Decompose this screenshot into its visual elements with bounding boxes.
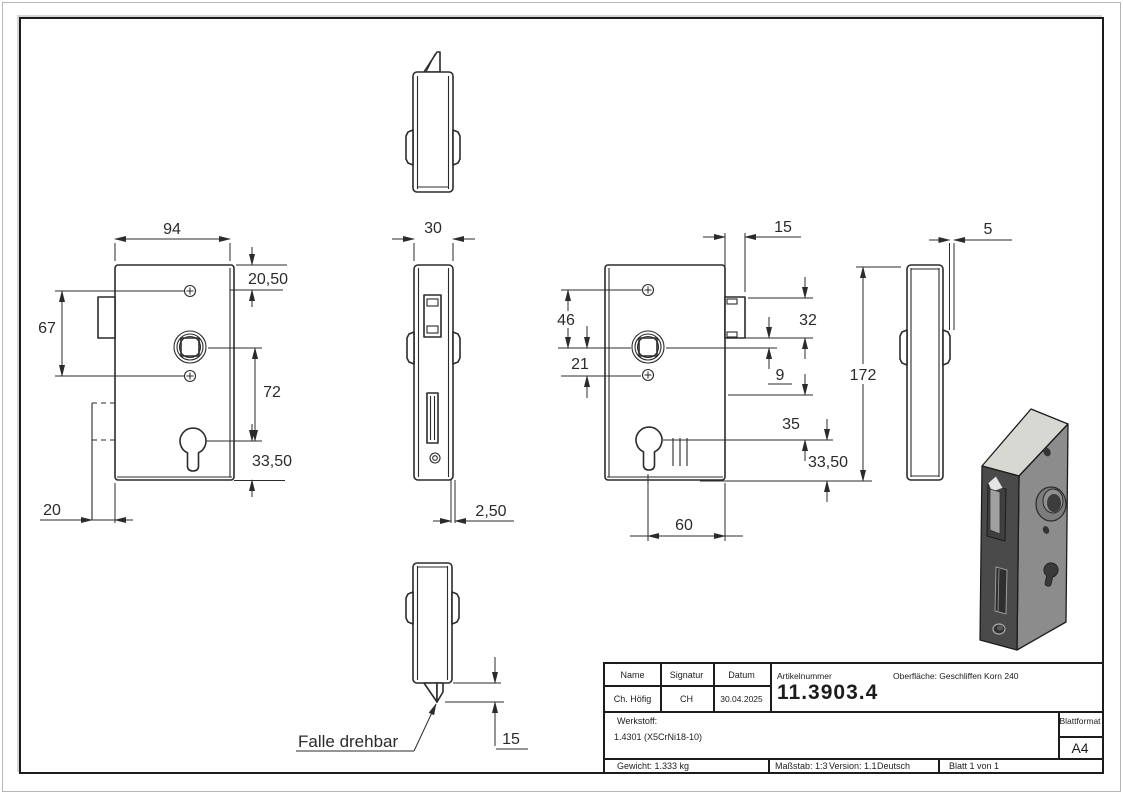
top-view [406,52,460,192]
mount-tab [900,330,907,365]
mount-tab [943,330,950,365]
name-value: Ch. Höfig [605,694,660,704]
divider [605,758,1102,760]
dim-172: 172 [850,367,877,384]
iso-view [980,409,1068,650]
iso-latch [990,489,1000,534]
drawing-sheet: 94 20,50 67 72 33,50 20 [0,0,1123,794]
sprache: Deutsch [877,761,910,771]
dim-9: 9 [776,367,785,384]
latch-front [98,297,115,338]
version: Version: 1.1 [829,761,877,771]
divider [938,758,940,772]
signatur-value: CH [660,694,713,704]
dim-33-50-front: 33,50 [252,453,292,470]
mount-tab [407,332,414,364]
back-view [605,265,745,480]
werkstoff-value: 1.4301 (X5CrNi18-10) [614,732,702,742]
massstab: Maßstab: 1:3 [775,761,828,771]
dim-35: 35 [782,416,800,433]
blattformat-label: Blattformat [1058,716,1102,726]
latch-back [725,297,745,338]
mount-tab [406,130,413,165]
mount-tab [453,332,460,364]
divider [1058,736,1102,738]
signatur-label: Signatur [660,670,713,680]
datum-value: 30.04.2025 [713,694,770,704]
dim-60: 60 [675,517,693,534]
bottom-view-dimensions: 15 Falle drehbar [296,657,528,751]
latch-top-view [424,52,440,72]
bottom-view [406,563,459,702]
divider [770,664,772,711]
dim-32: 32 [799,312,817,329]
front-view [92,265,234,520]
dim-15-latch: 15 [502,731,520,748]
dim-30: 30 [424,220,442,237]
artikelnummer-value: 11.3903.4 [777,681,878,705]
datum-label: Datum [713,670,770,680]
dim-21: 21 [571,356,589,373]
title-block: Name Signatur Datum Ch. Höfig CH 30.04.2… [603,662,1104,774]
dim-20-50: 20,50 [248,271,288,288]
name-label: Name [605,670,660,680]
dim-20: 20 [43,502,61,519]
dim-94: 94 [163,221,181,238]
dim-33-50-back: 33,50 [808,454,848,471]
latch-bottom-view [424,683,437,702]
dim-2-50: 2,50 [475,503,506,520]
dim-67: 67 [38,320,56,337]
faceplate-view [407,265,460,480]
werkstoff-label: Werkstoff: [617,716,657,726]
mount-tab [406,592,413,624]
note-falle-drehbar: Falle drehbar [298,732,399,751]
side-view [900,265,950,480]
dim-5: 5 [984,221,993,238]
gewicht: Gewicht: 1.333 kg [617,761,689,771]
dim-15-back: 15 [774,219,792,236]
blattformat-value: A4 [1058,740,1102,756]
divider [768,758,770,772]
divider [605,685,771,687]
dim-46: 46 [557,312,575,329]
artikelnummer-label: Artikelnummer [777,671,832,681]
dim-72: 72 [263,384,281,401]
mount-tab [453,130,460,165]
blatt: Blatt 1 von 1 [949,761,999,771]
iso-slot [995,567,1007,614]
divider [605,711,1102,713]
oberflaeche: Oberfläche: Geschliffen Korn 240 [893,671,1019,681]
mount-tab [452,592,459,624]
